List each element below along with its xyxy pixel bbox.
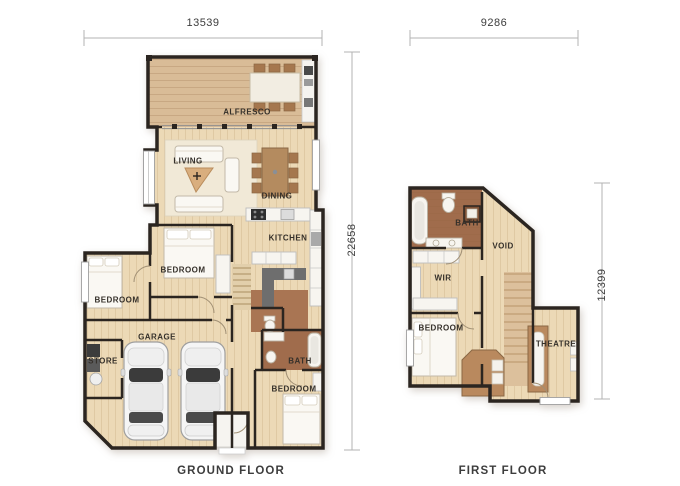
hall-tile-floor — [251, 290, 308, 332]
bedroom-window — [82, 262, 89, 302]
ground-bath-toilet — [266, 351, 276, 363]
bed-left-bedroom — [87, 256, 122, 308]
ground-bathtub — [308, 333, 321, 367]
first-bathtub — [412, 197, 428, 244]
dim-first-height: 12399 — [596, 268, 608, 301]
dim-first-width: 9286 — [481, 17, 507, 29]
first-bedroom-window — [407, 330, 414, 366]
stair-floor — [232, 264, 251, 310]
wardrobe-lower-bedroom — [313, 373, 322, 391]
kitchen-counter — [246, 208, 310, 221]
first-floor-title: FIRST FLOOR — [459, 465, 548, 477]
bed-lower-bedroom — [283, 394, 320, 444]
living-bay-window — [144, 151, 155, 204]
bed-first-bedroom — [412, 318, 456, 376]
dim-ground-width: 13539 — [186, 17, 219, 29]
bed-upper-bedroom — [164, 228, 214, 278]
theatre-window — [540, 398, 570, 405]
ground-bath-vanity — [264, 332, 284, 341]
floor-plan-sheet: ALFRESCO LIVING DINING KITCHEN BEDROOM B… — [0, 0, 680, 486]
wardrobe-upper-bedroom — [216, 255, 230, 293]
dim-ground-height: 22658 — [346, 223, 358, 256]
first-bath-vanity — [426, 238, 462, 248]
alfresco-table — [250, 64, 300, 111]
ground-floor-plan — [82, 55, 324, 454]
fridge-pantry-cabinet — [310, 210, 322, 306]
pantry-shelves — [252, 252, 296, 264]
linen-cupboard — [464, 206, 480, 222]
bbq-counter — [302, 60, 315, 122]
car-left — [121, 342, 171, 440]
dining-table — [252, 148, 298, 196]
first-toilet — [442, 193, 455, 213]
plans-svg — [0, 0, 680, 486]
ground-floor-title: GROUND FLOOR — [177, 465, 285, 477]
dining-window — [313, 140, 320, 190]
first-floor-plan — [407, 188, 579, 405]
